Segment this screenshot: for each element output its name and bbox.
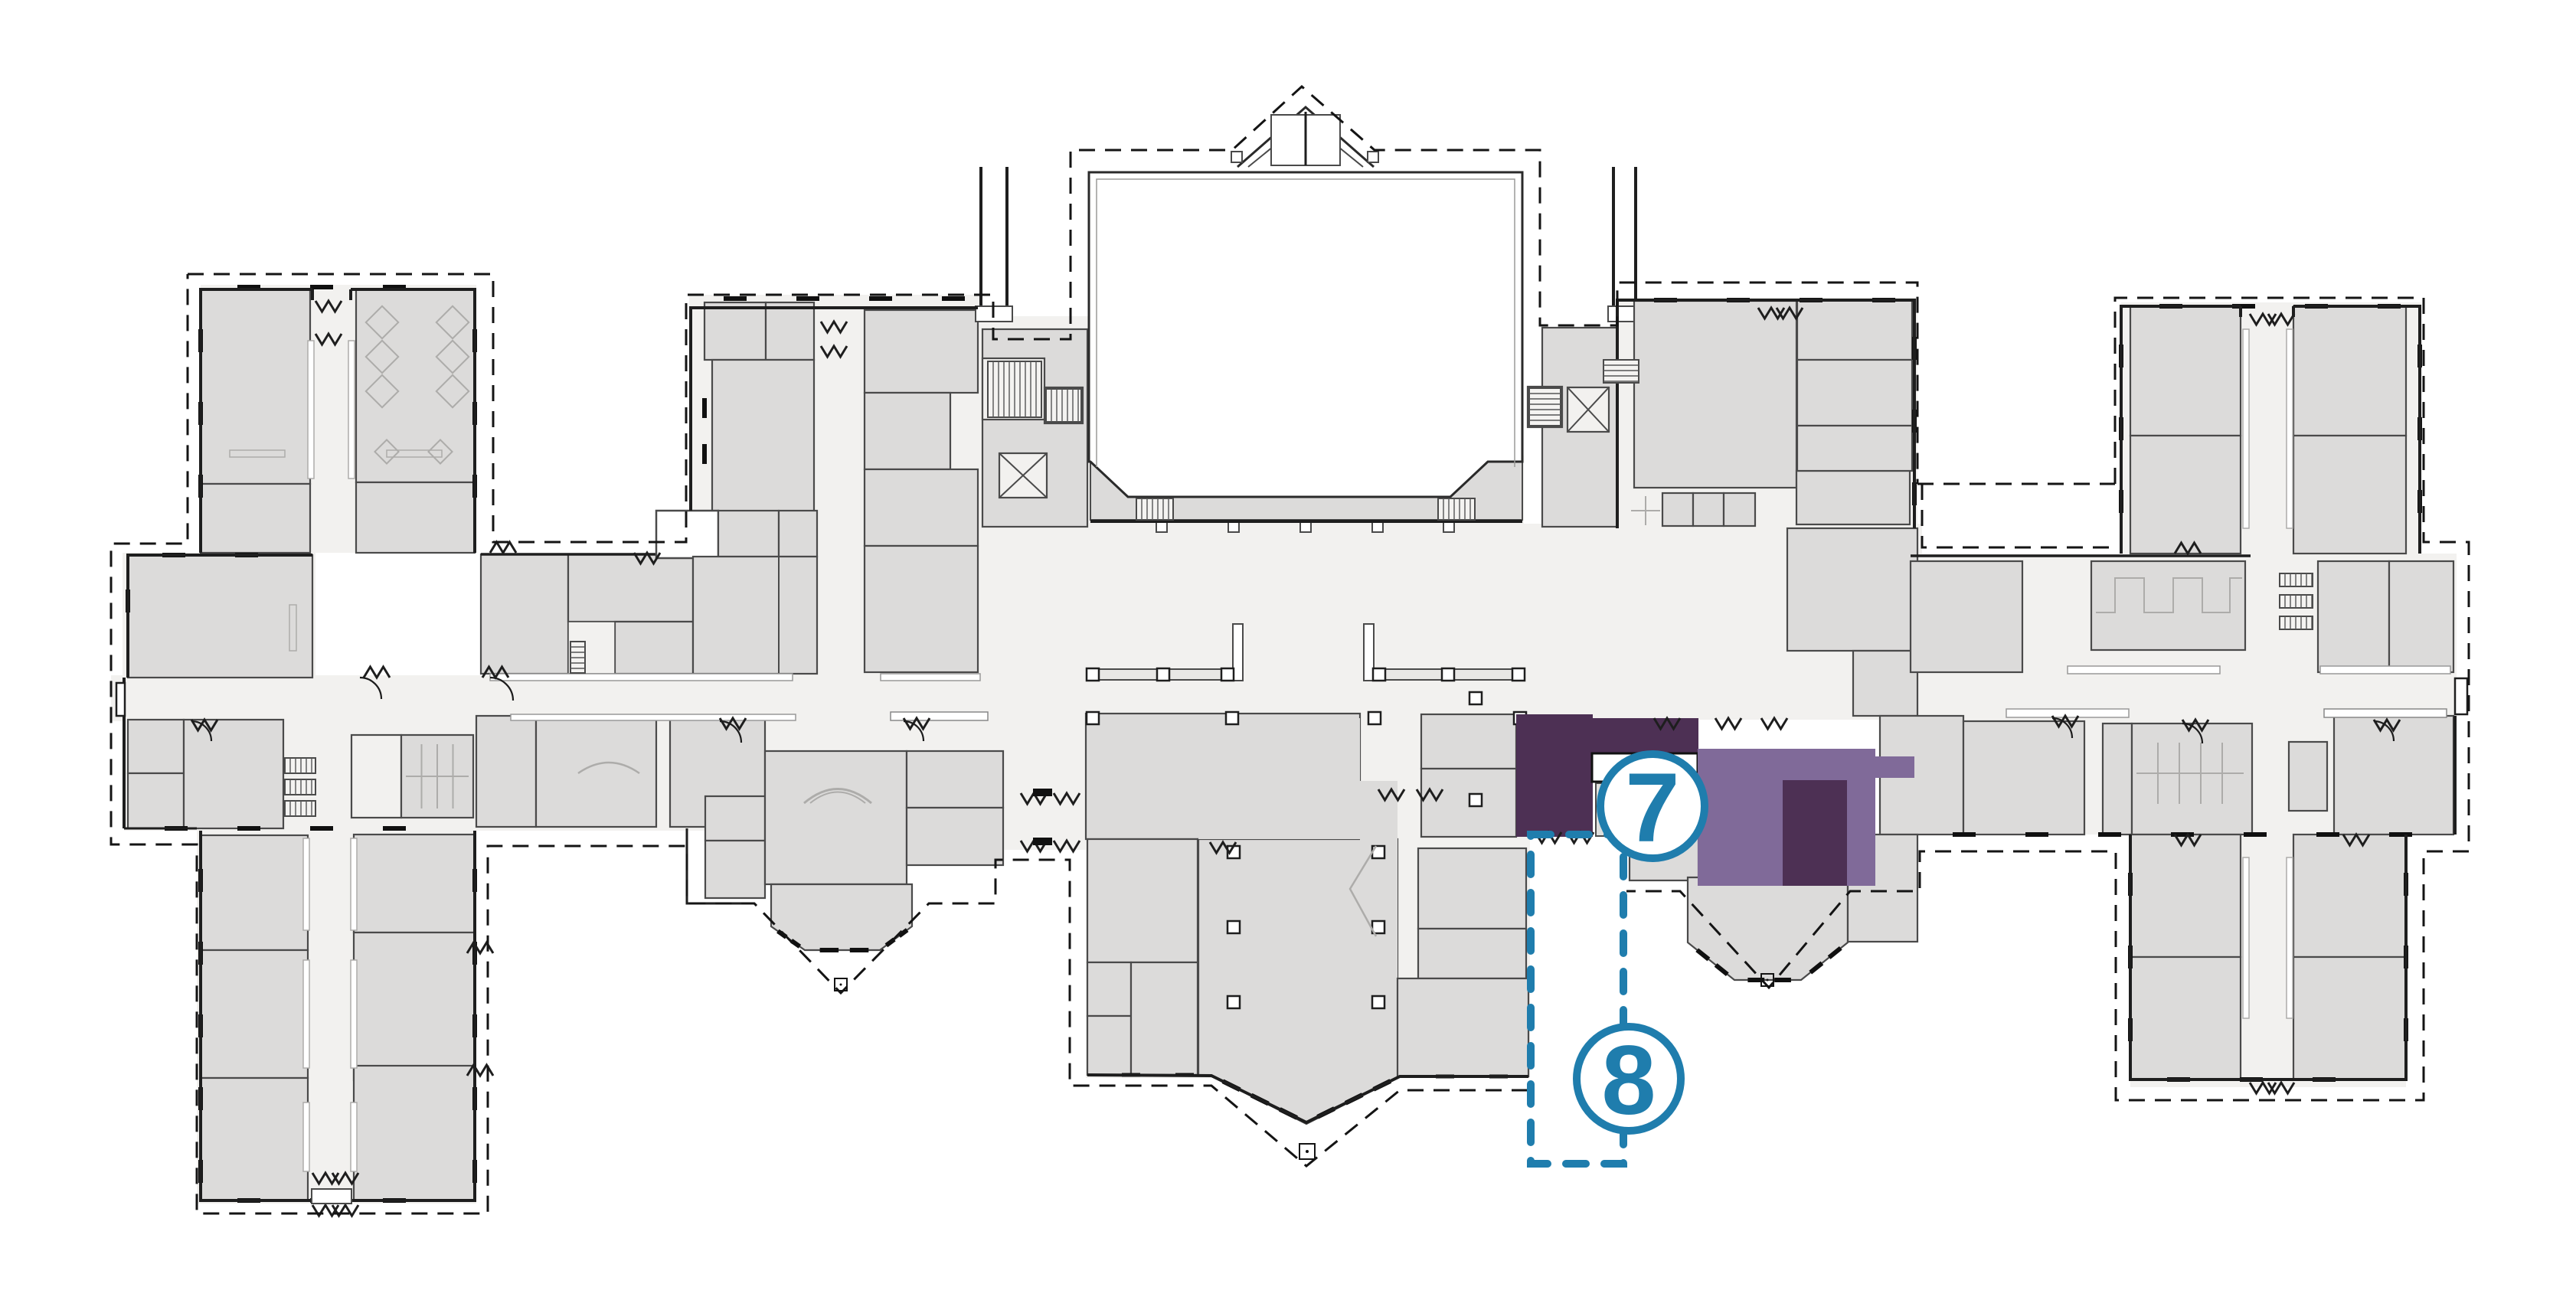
svg-text:7: 7 <box>1625 753 1679 863</box>
svg-text:8: 8 <box>1601 1026 1656 1135</box>
